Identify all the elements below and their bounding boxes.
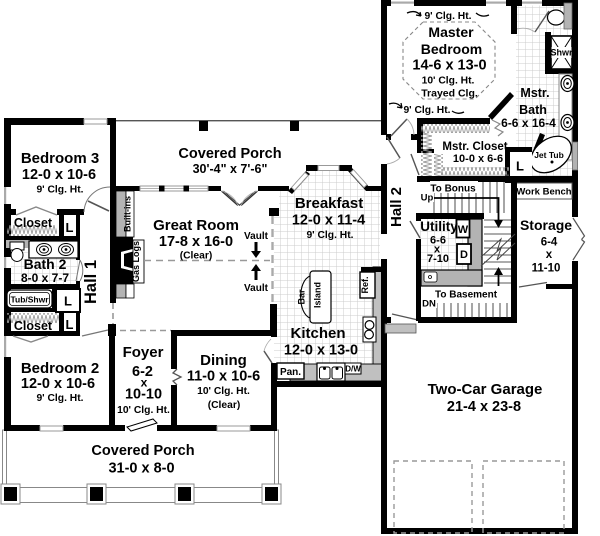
svg-text:L: L — [66, 220, 74, 235]
svg-text:Ref.: Ref. — [360, 276, 370, 293]
svg-text:Vault: Vault — [244, 231, 269, 242]
svg-text:Shwr: Shwr — [550, 48, 573, 58]
svg-text:Bath: Bath — [519, 103, 547, 117]
svg-text:Utility: Utility — [420, 219, 458, 234]
svg-text:Pan.: Pan. — [280, 367, 301, 378]
svg-text:To Basement: To Basement — [435, 290, 498, 301]
svg-text:31-0 x 8-0: 31-0 x 8-0 — [108, 461, 174, 477]
svg-text:10-10: 10-10 — [125, 387, 162, 403]
svg-text:Gas Logs: Gas Logs — [131, 241, 141, 282]
svg-text:Covered Porch: Covered Porch — [178, 146, 281, 162]
svg-text:10' Clg. Ht.: 10' Clg. Ht. — [197, 386, 250, 397]
svg-text:(Clear): (Clear) — [180, 251, 213, 262]
svg-text:9' Clg. Ht.: 9' Clg. Ht. — [36, 393, 83, 404]
svg-text:9' Clg. Ht.: 9' Clg. Ht. — [36, 185, 83, 196]
svg-text:L: L — [516, 159, 524, 174]
svg-text:Work Bench: Work Bench — [516, 187, 571, 198]
svg-text:12-0 x 11-4: 12-0 x 11-4 — [292, 213, 365, 229]
svg-text:Bedroom: Bedroom — [421, 41, 482, 57]
svg-text:Two-Car Garage: Two-Car Garage — [428, 381, 543, 398]
svg-text:Jet Tub: Jet Tub — [534, 150, 564, 160]
svg-text:9' Clg. Ht.: 9' Clg. Ht. — [424, 11, 471, 22]
svg-text:D: D — [460, 249, 468, 261]
svg-text:Dining: Dining — [200, 352, 247, 369]
svg-text:6-6 x 16-4: 6-6 x 16-4 — [501, 116, 556, 130]
svg-text:11-0 x 10-6: 11-0 x 10-6 — [187, 369, 260, 385]
svg-text:Hall 1: Hall 1 — [82, 260, 100, 304]
svg-text:9' Clg. Ht.: 9' Clg. Ht. — [306, 230, 353, 241]
svg-text:Covered Porch: Covered Porch — [91, 443, 194, 459]
svg-text:Up: Up — [421, 193, 434, 204]
svg-text:10' Clg. Ht.: 10' Clg. Ht. — [117, 405, 170, 416]
svg-text:D/W: D/W — [345, 365, 361, 374]
svg-text:30'-4" x 7'-6": 30'-4" x 7'-6" — [193, 162, 268, 176]
svg-text:Bedroom 2: Bedroom 2 — [21, 360, 99, 377]
svg-text:17-8 x 16-0: 17-8 x 16-0 — [159, 234, 233, 250]
svg-text:L: L — [66, 317, 74, 332]
svg-text:11-10: 11-10 — [532, 263, 561, 275]
svg-text:Bedroom 3: Bedroom 3 — [21, 150, 99, 167]
svg-text:L: L — [64, 294, 72, 309]
svg-text:Island: Island — [313, 282, 323, 308]
svg-text:12-0 x 10-6: 12-0 x 10-6 — [22, 167, 96, 183]
svg-text:8-0 x 7-7: 8-0 x 7-7 — [21, 271, 69, 285]
svg-text:10' Clg. Ht.: 10' Clg. Ht. — [422, 76, 475, 87]
svg-text:Storage: Storage — [520, 217, 572, 233]
svg-text:21-4 x 23-8: 21-4 x 23-8 — [447, 399, 521, 415]
svg-text:Built-ins: Built-ins — [123, 196, 133, 232]
svg-text:Closet: Closet — [14, 319, 53, 333]
svg-text:Mstr.: Mstr. — [520, 86, 549, 100]
svg-text:Bar: Bar — [297, 289, 307, 305]
svg-text:6-4: 6-4 — [541, 237, 558, 249]
svg-text:Bath 2: Bath 2 — [24, 256, 67, 272]
svg-text:To Bonus: To Bonus — [430, 184, 476, 195]
svg-text:Great Room: Great Room — [153, 217, 239, 234]
svg-text:Tub/Shwr: Tub/Shwr — [10, 295, 49, 305]
svg-text:(Clear): (Clear) — [208, 400, 241, 411]
svg-text:12-0 x 10-6: 12-0 x 10-6 — [21, 376, 95, 392]
svg-text:7-10: 7-10 — [427, 253, 449, 265]
svg-text:Kitchen: Kitchen — [290, 325, 345, 342]
svg-text:9' Clg. Ht.: 9' Clg. Ht. — [403, 105, 450, 116]
svg-text:12-0 x 13-0: 12-0 x 13-0 — [284, 343, 358, 359]
svg-text:Breakfast: Breakfast — [295, 195, 363, 212]
svg-text:Hall 2: Hall 2 — [388, 187, 405, 227]
svg-text:Vault: Vault — [244, 283, 269, 294]
svg-text:Mstr. Closet: Mstr. Closet — [442, 141, 507, 153]
svg-text:W: W — [458, 224, 469, 236]
svg-text:14-6 x 13-0: 14-6 x 13-0 — [412, 58, 486, 74]
svg-text:Trayed Clg.: Trayed Clg. — [421, 88, 478, 100]
svg-text:Master: Master — [428, 24, 474, 40]
svg-text:x: x — [546, 249, 553, 261]
svg-text:Foyer: Foyer — [123, 344, 164, 361]
svg-text:10-0 x 6-6: 10-0 x 6-6 — [453, 153, 503, 165]
svg-text:Closet: Closet — [14, 216, 53, 230]
svg-text:DN: DN — [422, 299, 436, 310]
